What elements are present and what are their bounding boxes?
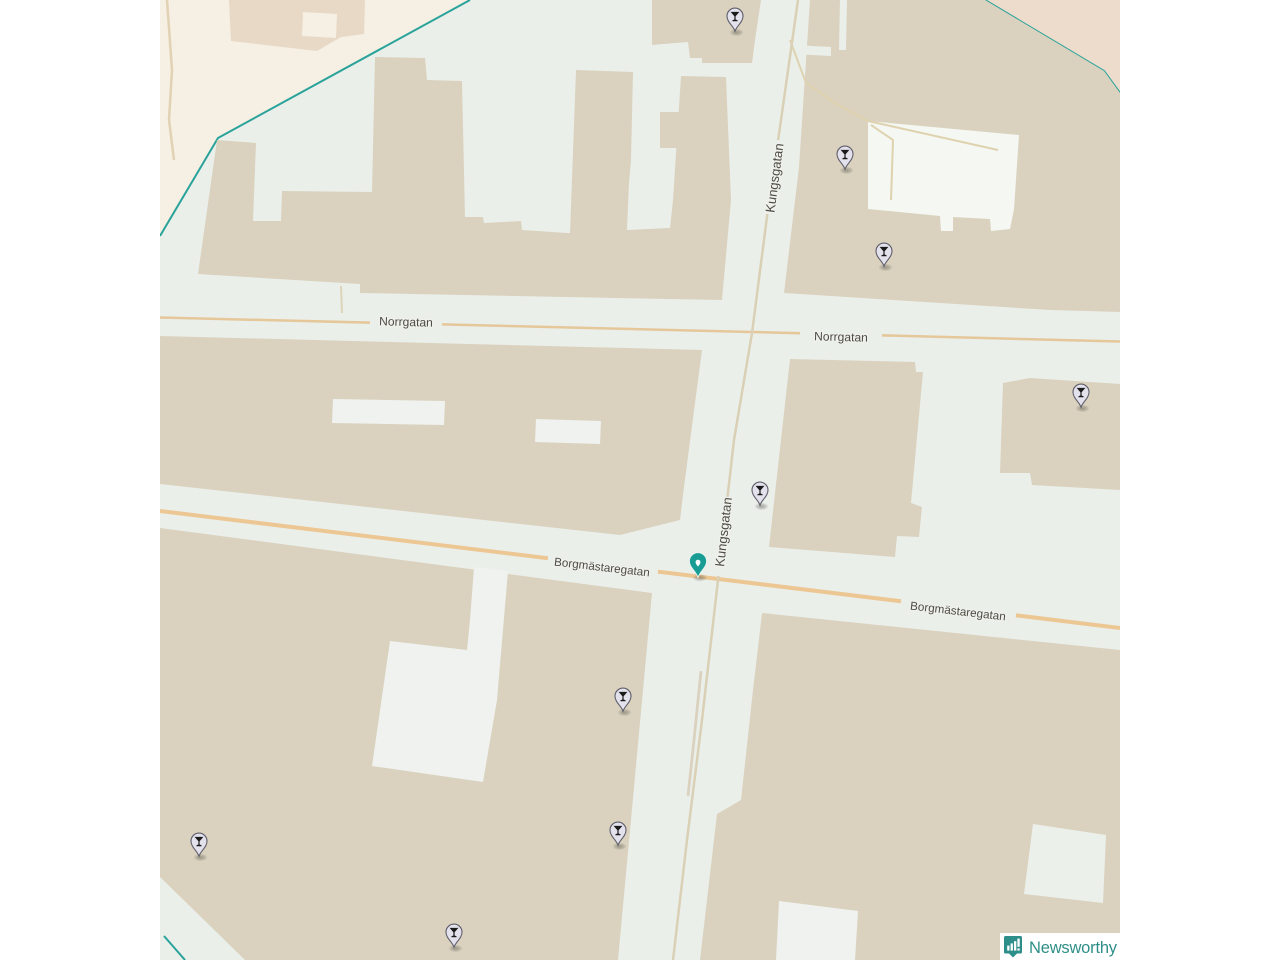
svg-text:Norrgatan: Norrgatan — [379, 314, 433, 329]
svg-text:Norrgatan: Norrgatan — [814, 329, 868, 344]
svg-text:Newsworthy: Newsworthy — [1029, 939, 1118, 957]
